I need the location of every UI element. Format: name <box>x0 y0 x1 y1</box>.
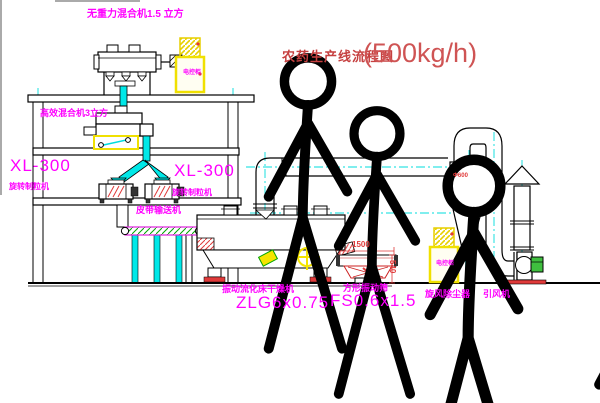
exhaust-stack <box>505 166 539 250</box>
label-cabinet-right: 电控柜 <box>436 261 454 267</box>
induced-draft-fan <box>506 252 546 284</box>
granulator-left <box>99 180 138 203</box>
drawing-capacity: (500kg/h) <box>363 40 477 67</box>
label-mid-mixer: 高效混合机3立方 <box>40 109 108 118</box>
label-sieve-model: FS0.6x1.5 <box>330 292 417 309</box>
label-granulator-right-name: 旋转制粒机 <box>172 189 212 197</box>
label-cabinet-top: 电控柜 <box>183 70 201 76</box>
label-granulator-left-model: XL-300 <box>10 157 71 174</box>
dim-sieve-length: 1500 <box>352 241 370 249</box>
pesticide-process-flow-drawing: 无重力混合机1.5 立方 高效混合机3立方 XL-300 旋转制粒机 XL-30… <box>0 0 600 403</box>
dim-sieve-height: 540 <box>388 260 396 273</box>
label-granulator-right-model: XL-300 <box>174 162 235 179</box>
label-dryer-model: ZLG6x0.75 <box>236 294 329 311</box>
discharge-chute <box>117 205 128 227</box>
label-granulator-left-name: 旋转制粒机 <box>9 183 49 191</box>
dim-cyclone-dia: Φ600 <box>453 173 468 179</box>
label-top-mixer: 无重力混合机1.5 立方 <box>87 10 184 20</box>
label-belt-conveyor: 皮带输送机 <box>136 206 181 215</box>
label-fan: 引风机 <box>483 290 510 299</box>
control-cabinet-top <box>176 38 204 92</box>
label-cyclone: 旋风除尘器 <box>425 290 470 299</box>
